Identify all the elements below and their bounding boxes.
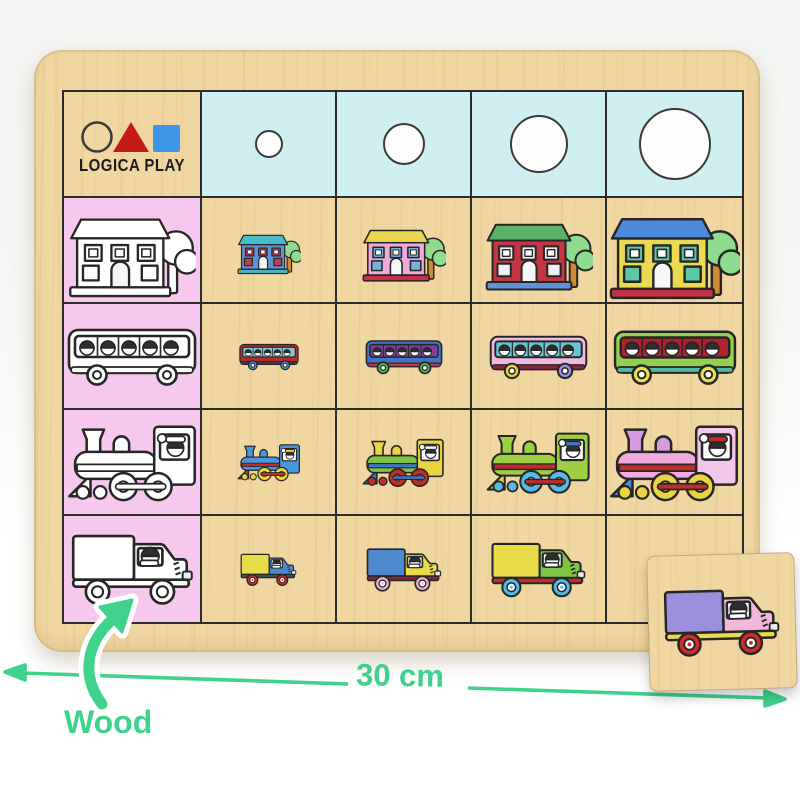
truck-icon	[239, 552, 298, 587]
truck-cell-size-2	[337, 516, 472, 622]
logo-shapes-icon	[80, 115, 184, 155]
puzzle-grid: LOGICA PLAY	[62, 90, 744, 624]
bus-cell-size-1	[202, 304, 337, 410]
truck-cell-size-1	[202, 516, 337, 622]
truck-icon	[661, 584, 783, 659]
house-icon	[68, 201, 196, 299]
removed-puzzle-piece	[646, 552, 798, 692]
train-icon	[237, 442, 301, 482]
brand-name: LOGICA PLAY	[79, 155, 185, 175]
material-label: Wood	[64, 704, 152, 741]
house-cell-size-1	[202, 198, 337, 304]
bus-cell-size-2	[337, 304, 472, 410]
size-circle-icon	[380, 120, 428, 168]
train-cell-size-3	[472, 410, 607, 516]
bus-cell-size-3	[472, 304, 607, 410]
truck-icon	[365, 546, 443, 593]
bus-icon	[239, 342, 299, 371]
house-cell-size-3	[472, 198, 607, 304]
train-icon	[486, 429, 591, 495]
train-cell-size-2	[337, 410, 472, 516]
size-circle-cell-1	[202, 92, 337, 198]
size-circle-cell-2	[337, 92, 472, 198]
bus-icon	[365, 338, 443, 375]
size-circle-icon	[636, 105, 714, 183]
house-icon	[485, 209, 593, 292]
sample-bus-cell	[64, 304, 202, 410]
bus-icon	[613, 327, 737, 386]
house-icon	[237, 226, 301, 275]
sample-train-cell	[64, 410, 202, 516]
train-icon	[362, 436, 445, 488]
house-cell-size-4	[607, 198, 742, 304]
product-photo: LOGICA PLAY 30 cm Wood	[0, 0, 800, 800]
size-circle-icon	[507, 112, 571, 176]
logo-cell: LOGICA PLAY	[64, 92, 202, 198]
train-icon	[67, 421, 198, 503]
house-icon	[609, 200, 740, 301]
material-arrow-icon	[72, 592, 172, 710]
size-circle-cell-4	[607, 92, 742, 198]
square-icon	[153, 125, 180, 152]
truck-cell-size-3	[472, 516, 607, 622]
width-label: 30 cm	[356, 657, 445, 695]
size-circle-cell-3	[472, 92, 607, 198]
train-cell-size-1	[202, 410, 337, 516]
brand-logo: LOGICA PLAY	[79, 115, 185, 174]
bus-icon	[67, 325, 197, 387]
bus-icon	[489, 333, 588, 380]
arrowhead-right-icon	[765, 691, 785, 706]
circle-icon	[82, 122, 111, 151]
sample-house-cell	[64, 198, 202, 304]
size-circle-icon	[252, 127, 286, 161]
train-cell-size-4	[607, 410, 742, 516]
bus-cell-size-4	[607, 304, 742, 410]
house-cell-size-2	[337, 198, 472, 304]
train-icon	[609, 421, 740, 503]
arrowhead-left-icon	[5, 665, 25, 680]
truck-icon	[489, 540, 588, 599]
triangle-icon	[113, 122, 149, 152]
house-icon	[362, 218, 446, 283]
